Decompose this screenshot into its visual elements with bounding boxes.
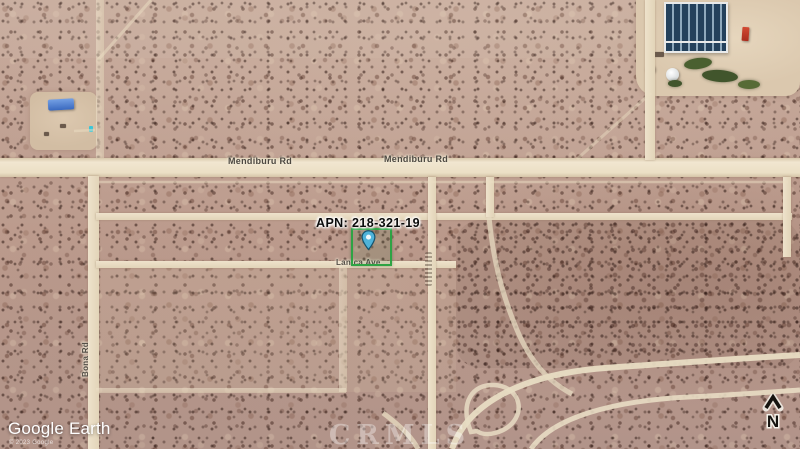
road-track-north [96, 0, 104, 158]
small-cyan-object [89, 126, 93, 132]
road-vertical-center [428, 177, 436, 449]
road-label-illegible [425, 252, 432, 286]
north-letter: N [767, 412, 779, 431]
curved-road-inner [531, 390, 800, 449]
location-pin-icon [361, 230, 376, 256]
apn-label: APN: 218-321-19 [316, 216, 420, 230]
diagonal-track-nw [98, 0, 151, 60]
google-earth-logo: Google Earth [8, 419, 111, 439]
facility-shed [654, 52, 664, 57]
road-vertical-facility [645, 0, 655, 160]
road-vertical-short [339, 266, 347, 392]
light-sand-area [96, 262, 456, 392]
water-tank [666, 68, 679, 81]
greenhouse-building [664, 2, 728, 53]
road-lanica [96, 261, 456, 268]
red-truck [742, 27, 750, 41]
curved-road-outer [452, 355, 800, 449]
diagonal-track-ne [577, 93, 651, 159]
road-track-lower [96, 388, 346, 393]
vegetation-patch [668, 80, 682, 87]
homestead-object [44, 132, 49, 136]
north-arrow-icon: N [761, 393, 785, 436]
road-label-bona: Bona Rd [81, 342, 90, 377]
s-curve-road [489, 217, 572, 394]
homestead-object [60, 124, 66, 128]
crmls-watermark: CRMLS [329, 420, 471, 449]
dense-brush-area [456, 220, 800, 368]
culdesac-loop [467, 385, 519, 434]
road-cross-upper [96, 213, 792, 220]
road-label-mendiburu-west: Mendiburu Rd [228, 156, 292, 166]
greenhouse-frame-line [666, 41, 726, 43]
blue-roof-structure [48, 98, 75, 110]
road-vertical-east [783, 177, 791, 257]
road-label-mendiburu-east: Mendiburu Rd [384, 154, 448, 164]
road-vertical-stub [486, 177, 494, 217]
satellite-map-image[interactable]: Mendiburu Rd Mendiburu Rd Lanica Ave Bon… [0, 0, 800, 449]
imagery-copyright: © 2023 Google [9, 440, 53, 446]
vegetation-patch [738, 80, 760, 89]
